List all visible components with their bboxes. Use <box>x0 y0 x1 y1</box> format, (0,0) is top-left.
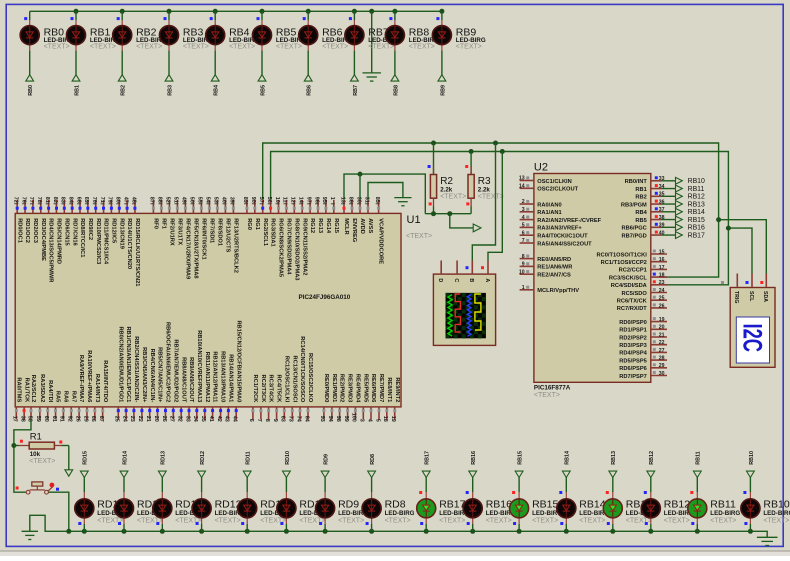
svg-text:29: 29 <box>659 363 665 369</box>
svg-text:69: 69 <box>83 197 89 203</box>
svg-text:<TEXT>: <TEXT> <box>664 518 690 525</box>
svg-text:2: 2 <box>522 199 525 205</box>
svg-text:RB4: RB4 <box>635 210 647 216</box>
svg-text:RF8/SDO1: RF8/SDO1 <box>217 218 223 246</box>
svg-text:RF7/SDI1: RF7/SDI1 <box>209 218 215 243</box>
svg-text:<TEXT>: <TEXT> <box>486 518 512 525</box>
svg-text:RC14/CN0/T1CK/SOSCO: RC14/CN0/T1CK/SOSCO <box>299 336 305 403</box>
svg-text:RE5/PMD5: RE5/PMD5 <box>362 374 368 402</box>
svg-text:RC0/T1OSO/T1CKI: RC0/T1OSO/T1CKI <box>597 252 648 258</box>
svg-text:RD13: RD13 <box>161 451 167 465</box>
svg-text:<TEXT>: <TEXT> <box>626 518 652 525</box>
svg-text:RG9/CN11/SS2/PMA2: RG9/CN11/SS2/PMA2 <box>301 218 307 275</box>
svg-text:RB11: RB11 <box>688 186 705 193</box>
svg-text:RB7: RB7 <box>353 85 359 96</box>
svg-text:20: 20 <box>659 325 665 331</box>
svg-text:93: 93 <box>319 416 325 422</box>
svg-text:RA7: RA7 <box>70 391 76 402</box>
svg-text:100: 100 <box>351 413 357 422</box>
svg-text:RD6/CN15: RD6/CN15 <box>63 218 69 246</box>
svg-text:RB17: RB17 <box>439 498 465 510</box>
svg-text:RA2/AN2/VREF-/CVREF: RA2/AN2/VREF-/CVREF <box>537 218 601 224</box>
svg-text:RF0: RF0 <box>153 218 159 229</box>
svg-text:RE0/AN5/RD: RE0/AN5/RD <box>537 257 571 263</box>
svg-text:10k: 10k <box>30 451 41 458</box>
svg-text:RB3/PGM: RB3/PGM <box>621 202 647 208</box>
svg-text:RB10/AN10/CVREF/PMA13: RB10/AN10/CVREF/PMA13 <box>196 330 202 402</box>
svg-text:RD2/PSP2: RD2/PSP2 <box>619 335 647 341</box>
svg-text:40: 40 <box>659 230 665 236</box>
svg-text:RB5: RB5 <box>635 218 646 224</box>
svg-text:<TEXT>: <TEXT> <box>406 233 432 240</box>
svg-text:<TEXT>: <TEXT> <box>409 44 435 51</box>
svg-text:RB14: RB14 <box>579 498 605 510</box>
svg-text:RB12: RB12 <box>688 194 705 201</box>
svg-text:55: 55 <box>197 197 203 203</box>
svg-text:RA4/TDI: RA4/TDI <box>47 380 53 403</box>
svg-text:RB4: RB4 <box>214 85 220 96</box>
svg-text:RB10: RB10 <box>763 498 789 510</box>
svg-text:RB13/AN13/PMA10: RB13/AN13/PMA10 <box>220 351 226 402</box>
svg-text:86: 86 <box>347 197 353 203</box>
svg-text:RB7/AN7/EMUD2/PGD2: RB7/AN7/EMUD2/PGD2 <box>172 339 178 402</box>
svg-text:<TEXT>: <TEXT> <box>322 44 348 51</box>
svg-text:49: 49 <box>181 197 187 203</box>
svg-text:RD11/PMCS1/IC4: RD11/PMCS1/IC4 <box>103 218 109 265</box>
svg-text:21: 21 <box>145 416 151 422</box>
svg-text:U1: U1 <box>407 214 421 226</box>
svg-text:14: 14 <box>519 184 525 190</box>
svg-text:1: 1 <box>522 285 525 291</box>
svg-text:RE1/PMD1: RE1/PMD1 <box>331 374 337 402</box>
svg-text:RE2/AN7/CS: RE2/AN7/CS <box>537 273 571 279</box>
svg-text:RD7/CN16: RD7/CN16 <box>71 218 77 246</box>
svg-text:RF12/U2CTS: RF12/U2CTS <box>225 218 231 252</box>
svg-text:<TEXT>: <TEXT> <box>136 44 162 51</box>
svg-text:81: 81 <box>44 197 50 203</box>
svg-text:66: 66 <box>90 416 96 422</box>
svg-text:RG14: RG14 <box>325 218 331 234</box>
svg-text:18: 18 <box>382 416 388 422</box>
svg-text:RD9: RD9 <box>324 454 330 465</box>
svg-text:38: 38 <box>19 416 25 422</box>
svg-text:SDA: SDA <box>762 291 768 302</box>
svg-text:<TEXT>: <TEXT> <box>439 518 465 525</box>
svg-text:23: 23 <box>659 280 665 286</box>
svg-text:12: 12 <box>290 197 296 203</box>
svg-text:15: 15 <box>659 249 665 255</box>
svg-text:59: 59 <box>35 416 41 422</box>
svg-text:13: 13 <box>339 197 345 203</box>
svg-text:RB15: RB15 <box>518 451 524 465</box>
svg-text:<TEXT>: <TEXT> <box>440 194 466 201</box>
svg-text:77: 77 <box>28 197 34 203</box>
svg-text:30: 30 <box>659 371 665 377</box>
svg-text:RB15/CN12/OCFB/AN15/PMA0: RB15/CN12/OCFB/AN15/PMA0 <box>235 320 241 402</box>
svg-text:95: 95 <box>321 197 327 203</box>
svg-text:RB10: RB10 <box>688 178 705 185</box>
svg-text:RD15: RD15 <box>83 451 89 465</box>
svg-text:RB14: RB14 <box>565 451 571 465</box>
svg-text:RF5/CN18/U2TX/PMA8: RF5/CN18/U2TX/PMA8 <box>193 218 199 278</box>
svg-text:RE9/INT2: RE9/INT2 <box>394 377 400 402</box>
svg-text:RD12: RD12 <box>200 451 206 465</box>
svg-text:PIC16F877A: PIC16F877A <box>534 385 571 392</box>
svg-text:44: 44 <box>232 416 238 422</box>
svg-text:11: 11 <box>282 197 288 203</box>
svg-text:RB0: RB0 <box>28 85 34 96</box>
svg-text:B: B <box>468 278 474 282</box>
svg-text:RC3/T4CK: RC3/T4CK <box>268 374 274 403</box>
svg-text:2.2k: 2.2k <box>440 187 453 194</box>
svg-text:27: 27 <box>659 348 665 354</box>
svg-text:RD13/CN19: RD13/CN19 <box>118 218 124 249</box>
svg-text:6: 6 <box>522 230 525 236</box>
svg-text:RG2/SCL1: RG2/SCL1 <box>262 218 268 246</box>
svg-text:73: 73 <box>288 416 294 422</box>
svg-text:RG12: RG12 <box>309 218 315 233</box>
svg-text:RD7/PSP7: RD7/PSP7 <box>619 374 647 380</box>
svg-text:<TEXT>: <TEXT> <box>534 392 560 399</box>
svg-text:RD9/IC2: RD9/IC2 <box>87 218 93 240</box>
svg-text:RD0/OC1: RD0/OC1 <box>16 218 22 243</box>
svg-text:32: 32 <box>177 416 183 422</box>
svg-text:RE8/INT1: RE8/INT1 <box>386 377 392 402</box>
svg-text:84: 84 <box>67 197 73 203</box>
svg-text:ENVREG: ENVREG <box>351 218 357 243</box>
svg-text:A: A <box>484 278 490 282</box>
svg-text:TRIG: TRIG <box>733 291 739 303</box>
svg-text:RE2/PMD2: RE2/PMD2 <box>339 374 345 402</box>
svg-text:RB1/CN3/AN1/EMUC1/PGC1: RB1/CN3/AN1/EMUC1/PGC1 <box>125 326 131 402</box>
svg-text:RA9/VREF-/PMA7: RA9/VREF-/PMA7 <box>78 355 84 402</box>
svg-text:RB6/OCFA/AN6/EMUC2/PGC2: RB6/OCFA/AN6/EMUC2/PGC2 <box>165 322 171 402</box>
svg-text:33: 33 <box>659 176 665 182</box>
svg-text:91: 91 <box>59 416 65 422</box>
svg-text:RC1/T2CK: RC1/T2CK <box>252 374 258 403</box>
svg-text:RB5: RB5 <box>260 85 266 96</box>
svg-text:RB8/AN8/C1OUT: RB8/AN8/C1OUT <box>180 357 186 403</box>
svg-text:LED-BIRG: LED-BIRG <box>710 510 740 517</box>
svg-text:RD9: RD9 <box>338 498 359 510</box>
svg-text:LED-BIRG: LED-BIRG <box>763 510 790 517</box>
svg-text:56: 56 <box>266 197 272 203</box>
svg-text:RG1: RG1 <box>254 218 260 230</box>
svg-text:22: 22 <box>137 416 143 422</box>
svg-text:RA3/SDA2: RA3/SDA2 <box>39 374 45 402</box>
svg-text:RB3: RB3 <box>167 85 173 96</box>
svg-text:RB11/AN11/PMA12: RB11/AN11/PMA12 <box>204 352 210 403</box>
svg-text:RD1/OC2: RD1/OC2 <box>24 218 30 243</box>
svg-text:RD3/OC4/PMBE: RD3/OC4/PMBE <box>40 218 46 261</box>
svg-text:RF2/U1RX: RF2/U1RX <box>169 218 175 246</box>
svg-text:SCL: SCL <box>748 291 754 302</box>
svg-text:36: 36 <box>659 199 665 205</box>
svg-text:PIC24FJ96GA010: PIC24FJ96GA010 <box>299 294 351 301</box>
svg-text:35: 35 <box>200 416 206 422</box>
svg-text:20: 20 <box>153 416 159 422</box>
svg-text:4: 4 <box>522 215 525 221</box>
svg-text:5: 5 <box>522 223 525 229</box>
svg-text:42: 42 <box>216 416 222 422</box>
svg-text:60: 60 <box>43 416 49 422</box>
svg-text:RF3/U1TX: RF3/U1TX <box>177 218 183 245</box>
svg-text:2.2k: 2.2k <box>478 187 491 194</box>
svg-text:RD6/PSP6: RD6/PSP6 <box>619 366 647 372</box>
svg-text:RC13/CN1/SOSCI: RC13/CN1/SOSCI <box>291 356 297 403</box>
svg-text:C: C <box>453 278 459 282</box>
svg-text:88: 88 <box>157 197 163 203</box>
svg-text:RB4/CN6/AN4/C1IN-: RB4/CN6/AN4/C1IN- <box>149 349 155 403</box>
svg-text:RA3/AN3/VREF+: RA3/AN3/VREF+ <box>537 226 582 232</box>
svg-text:RB2: RB2 <box>121 85 127 96</box>
svg-text:94: 94 <box>327 416 333 422</box>
svg-text:RA10/VREF+/PMA6: RA10/VREF+/PMA6 <box>86 350 92 402</box>
svg-text:RB11: RB11 <box>696 451 702 464</box>
svg-text:RB15: RB15 <box>532 498 558 510</box>
svg-text:90: 90 <box>250 197 256 203</box>
svg-text:18: 18 <box>659 273 665 279</box>
svg-text:RA15/INT4/TDO: RA15/INT4/TDO <box>102 360 108 403</box>
svg-text:RC15/OSC2/CLKO: RC15/OSC2/CLKO <box>307 353 313 403</box>
svg-text:27: 27 <box>169 416 175 422</box>
svg-text:33: 33 <box>184 416 190 422</box>
svg-text:96: 96 <box>313 197 319 203</box>
svg-text:<TEXT>: <TEXT> <box>338 518 364 525</box>
svg-text:<TEXT>: <TEXT> <box>215 518 241 525</box>
svg-text:RB14/AN14/PMA1: RB14/AN14/PMA1 <box>228 354 234 402</box>
svg-text:RC2/CCP1: RC2/CCP1 <box>619 268 647 274</box>
svg-text:RF13/U2RTS/BCLK2: RF13/U2RTS/BCLK2 <box>233 218 239 273</box>
svg-text:10: 10 <box>274 197 280 203</box>
svg-text:RG15: RG15 <box>333 218 339 233</box>
svg-text:31: 31 <box>363 197 369 203</box>
svg-text:RD3/PSP3: RD3/PSP3 <box>619 343 647 349</box>
svg-text:47: 47 <box>122 197 128 203</box>
svg-text:89: 89 <box>242 197 248 203</box>
svg-text:RG3/SDA1: RG3/SDA1 <box>270 218 276 246</box>
svg-text:17: 17 <box>659 265 665 271</box>
svg-text:80: 80 <box>115 197 121 203</box>
svg-text:RG0: RG0 <box>246 218 252 230</box>
svg-text:RB12: RB12 <box>649 451 655 465</box>
svg-text:RE6/PMD6: RE6/PMD6 <box>370 374 376 402</box>
svg-text:3: 3 <box>359 419 365 422</box>
svg-text:RA0/TMS: RA0/TMS <box>15 377 21 402</box>
svg-text:85: 85 <box>374 197 380 203</box>
svg-text:OSC1/CLKIN: OSC1/CLKIN <box>537 179 571 185</box>
svg-text:RA14/INT3: RA14/INT3 <box>94 374 100 402</box>
svg-text:RB7/PGD: RB7/PGD <box>622 233 647 239</box>
svg-text:4: 4 <box>366 419 372 422</box>
svg-text:RC7/RX/DT: RC7/RX/DT <box>617 306 648 312</box>
svg-text:30: 30 <box>355 197 361 203</box>
svg-text:16: 16 <box>659 257 665 263</box>
svg-text:<TEXT>: <TEXT> <box>579 518 605 525</box>
svg-text:RG7/CN9/SDI2/PMA4: RG7/CN9/SDI2/PMA4 <box>286 218 292 275</box>
svg-text:28: 28 <box>659 356 665 362</box>
svg-text:RB15: RB15 <box>688 217 705 224</box>
svg-text:10: 10 <box>519 269 525 275</box>
svg-text:<TEXT>: <TEXT> <box>478 194 504 201</box>
svg-text:<TEXT>: <TEXT> <box>276 44 302 51</box>
svg-text:RD2/OC3: RD2/OC3 <box>32 218 38 243</box>
svg-text:64: 64 <box>303 416 309 422</box>
svg-text:RE1/AN6/WR: RE1/AN6/WR <box>537 265 572 271</box>
svg-text:RB13: RB13 <box>611 451 617 465</box>
svg-text:9: 9 <box>272 419 278 422</box>
svg-text:21: 21 <box>659 332 665 338</box>
svg-text:13: 13 <box>519 176 525 182</box>
svg-text:7: 7 <box>256 419 262 422</box>
svg-text:26: 26 <box>659 303 665 309</box>
svg-text:7: 7 <box>522 238 525 244</box>
svg-text:24: 24 <box>121 416 127 422</box>
svg-text:VCAP/VDDCORE: VCAP/VDDCORE <box>378 218 384 264</box>
svg-text:I2C: I2C <box>738 324 768 353</box>
svg-text:68: 68 <box>75 197 81 203</box>
svg-text:OSC2/CLKOUT: OSC2/CLKOUT <box>537 187 578 193</box>
svg-text:RA6: RA6 <box>63 391 69 402</box>
svg-text:RB9/AN9/C2OUT: RB9/AN9/C2OUT <box>188 357 194 403</box>
svg-text:97: 97 <box>305 197 311 203</box>
svg-text:82: 82 <box>52 197 58 203</box>
svg-text:71: 71 <box>99 197 105 203</box>
svg-text:63: 63 <box>280 416 286 422</box>
svg-text:RA1/TCK: RA1/TCK <box>23 378 29 404</box>
svg-text:41: 41 <box>208 416 214 422</box>
svg-text:78: 78 <box>36 197 42 203</box>
svg-text:19: 19 <box>390 416 396 422</box>
svg-text:RD8: RD8 <box>385 498 406 510</box>
svg-text:<TEXT>: <TEXT> <box>90 44 116 51</box>
svg-text:39: 39 <box>659 223 665 229</box>
svg-text:98: 98 <box>335 416 341 422</box>
svg-text:RB8: RB8 <box>393 85 399 96</box>
svg-text:<TEXT>: <TEXT> <box>456 44 482 51</box>
svg-text:RC1/T1OSI/CCP2: RC1/T1OSI/CCP2 <box>601 260 647 266</box>
svg-text:RD12/IC5: RD12/IC5 <box>111 218 117 243</box>
svg-text:RD15/RCLK/U1RTS/CN21: RD15/RCLK/U1RTS/CN21 <box>134 218 140 286</box>
svg-text:<TEXT>: <TEXT> <box>385 518 411 525</box>
svg-text:24: 24 <box>659 288 665 294</box>
svg-text:RF1: RF1 <box>161 218 167 229</box>
svg-text:26: 26 <box>74 416 80 422</box>
svg-text:87: 87 <box>149 197 155 203</box>
svg-text:RB1: RB1 <box>74 85 80 96</box>
svg-text:RB6/PGC: RB6/PGC <box>622 226 647 232</box>
svg-text:RF6/INT0/SCK1: RF6/INT0/SCK1 <box>201 218 207 259</box>
svg-text:34: 34 <box>659 184 665 190</box>
svg-text:8: 8 <box>264 419 270 422</box>
svg-text:RE4/PMD4: RE4/PMD4 <box>355 374 361 403</box>
svg-text:26: 26 <box>161 416 167 422</box>
svg-text:RG8/CN10/SDO2/PMA3: RG8/CN10/SDO2/PMA3 <box>293 218 299 280</box>
svg-text:RB12/AN12/PMA11: RB12/AN12/PMA11 <box>212 351 218 402</box>
svg-text:RA0/AN0: RA0/AN0 <box>537 202 561 208</box>
svg-text:R2: R2 <box>440 176 453 187</box>
svg-text:MCLR: MCLR <box>343 218 349 234</box>
svg-text:52: 52 <box>165 197 171 203</box>
svg-text:R1: R1 <box>30 432 42 443</box>
svg-text:61: 61 <box>51 416 57 422</box>
svg-text:72: 72 <box>13 197 19 203</box>
svg-text:RB12: RB12 <box>664 498 690 510</box>
svg-text:RD8: RD8 <box>370 454 376 465</box>
svg-text:38: 38 <box>659 215 665 221</box>
svg-text:RD10/PMCS2/IC3: RD10/PMCS2/IC3 <box>95 218 101 264</box>
svg-text:<TEXT>: <TEXT> <box>763 518 789 525</box>
svg-text:RC4/T5CK: RC4/T5CK <box>276 374 282 403</box>
svg-text:79: 79 <box>107 197 113 203</box>
svg-text:RB5/CN7/AN5/C1IN+: RB5/CN7/AN5/C1IN+ <box>157 347 163 403</box>
svg-text:RB13: RB13 <box>688 201 705 208</box>
svg-text:8: 8 <box>522 254 525 260</box>
svg-text:R3: R3 <box>478 176 491 187</box>
svg-text:RA4/T0CKI/C1OUT: RA4/T0CKI/C1OUT <box>537 234 588 240</box>
svg-text:29: 29 <box>82 416 88 422</box>
svg-text:RB6: RB6 <box>307 85 313 96</box>
svg-text:RA5/AN4/SS/C2OUT: RA5/AN4/SS/C2OUT <box>537 241 592 247</box>
svg-text:RC6/TX/CK: RC6/TX/CK <box>617 299 648 305</box>
svg-text:19: 19 <box>659 317 665 323</box>
svg-text:76: 76 <box>20 197 26 203</box>
svg-text:RB0/CN2/AN0/EMUD1/PGD1: RB0/CN2/AN0/EMUD1/PGD1 <box>117 326 123 402</box>
svg-text:48: 48 <box>130 197 136 203</box>
svg-text:34: 34 <box>192 416 198 422</box>
svg-text:RB11: RB11 <box>710 498 736 510</box>
svg-text:RD1/PSP1: RD1/PSP1 <box>619 328 647 334</box>
svg-text:RB9: RB9 <box>440 85 446 96</box>
svg-text:<TEXT>: <TEXT> <box>710 518 736 525</box>
svg-text:RC3/SCK/SCL: RC3/SCK/SCL <box>609 275 647 281</box>
svg-text:RD5/PSP5: RD5/PSP5 <box>619 358 647 364</box>
svg-text:50: 50 <box>189 197 195 203</box>
svg-text:RE7/PMD7: RE7/PMD7 <box>378 374 384 402</box>
svg-text:25: 25 <box>659 296 665 302</box>
svg-text:RD10: RD10 <box>285 451 291 465</box>
svg-text:RG13: RG13 <box>317 218 323 233</box>
svg-text:67: 67 <box>98 416 104 422</box>
svg-text:RF4/CN17/U2RX/PMA9: RF4/CN17/U2RX/PMA9 <box>185 218 191 279</box>
svg-text:RD14/U1CTS/CN20: RD14/U1CTS/CN20 <box>126 218 132 269</box>
svg-text:RD11: RD11 <box>246 451 252 464</box>
svg-text:RG6/CN8/SCK2/PMA5: RG6/CN8/SCK2/PMA5 <box>278 218 284 277</box>
svg-text:AVSS: AVSS <box>367 218 373 233</box>
svg-text:RD14: RD14 <box>122 451 128 465</box>
svg-text:RB0/INT: RB0/INT <box>625 179 648 185</box>
svg-text:RC12/OSC1/CLKI: RC12/OSC1/CLKI <box>283 356 289 403</box>
svg-text:<TEXT>: <TEXT> <box>29 458 55 465</box>
svg-text:14: 14 <box>298 197 304 203</box>
svg-text:MCLR/Vpp/THV: MCLR/Vpp/THV <box>537 288 579 294</box>
svg-text:RB1: RB1 <box>635 187 646 193</box>
svg-text:74: 74 <box>295 416 301 422</box>
svg-text:<TEXT>: <TEXT> <box>44 44 70 51</box>
svg-text:35: 35 <box>659 192 665 198</box>
svg-text:1: 1 <box>329 197 335 200</box>
svg-text:RD4/PSP4: RD4/PSP4 <box>619 351 647 357</box>
svg-text:<TEXT>: <TEXT> <box>229 44 255 51</box>
svg-text:RD0/PSP0: RD0/PSP0 <box>619 320 647 326</box>
svg-text:RA5: RA5 <box>55 391 61 402</box>
svg-text:RA1/AN1: RA1/AN1 <box>537 210 561 216</box>
svg-text:RB14: RB14 <box>688 209 705 216</box>
svg-text:RD4/CN13/SOC5/PMWR: RD4/CN13/SOC5/PMWR <box>48 218 54 282</box>
svg-text:83: 83 <box>60 197 66 203</box>
svg-text:5: 5 <box>374 419 380 422</box>
svg-text:RC4/SDI/SDA: RC4/SDI/SDA <box>611 283 647 289</box>
